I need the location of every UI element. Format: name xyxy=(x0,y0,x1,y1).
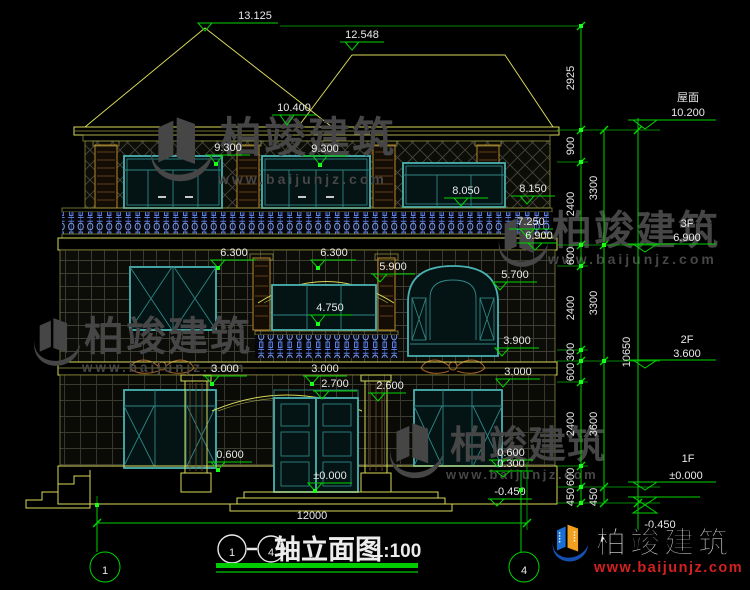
title-name: 轴立面图 xyxy=(274,534,382,565)
svg-text:±0.000: ±0.000 xyxy=(669,470,703,482)
level-mark: -0.450 xyxy=(488,486,532,506)
brand-logo: 柏竣建筑 www.baijunjz.com xyxy=(553,525,743,576)
pilaster xyxy=(250,254,273,330)
pilaster xyxy=(93,141,119,208)
level-mark: 12.548 xyxy=(340,29,384,50)
brand-logo-icon xyxy=(553,525,588,562)
balcony-rail-2f xyxy=(255,331,398,358)
watermark-url: www.baijunjz.com xyxy=(217,171,387,187)
dim: 600 xyxy=(565,468,577,486)
axis-left: 1 xyxy=(102,565,108,577)
dim: 2400 xyxy=(565,296,577,320)
dim: 3600 xyxy=(588,412,600,436)
title-scale: 1:100 xyxy=(373,541,422,562)
dim: 2925 xyxy=(565,66,577,90)
dim: 900 xyxy=(565,137,577,155)
width-dim: 12000 xyxy=(297,510,328,522)
svg-text:13.125: 13.125 xyxy=(238,10,272,22)
svg-text:2F: 2F xyxy=(681,334,694,346)
floor-marker: 2F 3.600 xyxy=(628,334,716,368)
svg-text:2.600: 2.600 xyxy=(376,380,404,392)
svg-text:5.900: 5.900 xyxy=(379,261,407,273)
floor-marker: 1F ±0.000 xyxy=(628,453,716,490)
level-mark: 13.125 xyxy=(198,10,278,31)
svg-text:2.700: 2.700 xyxy=(321,378,349,390)
svg-text:5.700: 5.700 xyxy=(501,269,529,281)
brand-logo-name: 柏竣建筑 xyxy=(596,526,732,560)
cad-viewport: 柏竣建筑 www.baijunjz.com 柏竣建筑 www.baijunjz.… xyxy=(0,0,750,590)
svg-text:6.300: 6.300 xyxy=(320,247,348,259)
floor-level-markers: 屋面 10.200 3F 6.900 2F 3.600 1F ±0.000 -0… xyxy=(628,91,716,531)
watermark-brand: 柏竣建筑 xyxy=(450,425,606,467)
dim: 300 xyxy=(565,343,577,361)
title-axis-from: 1 xyxy=(229,547,235,559)
svg-text:6.300: 6.300 xyxy=(220,247,248,259)
axis-right: 4 xyxy=(521,565,527,577)
dim: 450 xyxy=(565,488,577,506)
svg-text:3.000: 3.000 xyxy=(211,363,239,375)
dim: 3300 xyxy=(588,176,600,200)
svg-text:0.600: 0.600 xyxy=(216,449,244,461)
steps xyxy=(26,470,452,511)
svg-text:0.300: 0.300 xyxy=(497,458,525,470)
dim: 3300 xyxy=(588,291,600,315)
svg-text:7.250: 7.250 xyxy=(517,216,545,228)
floor-marker: 屋面 10.200 xyxy=(628,91,716,129)
svg-text:8.050: 8.050 xyxy=(452,185,480,197)
dim: 600 xyxy=(565,363,577,381)
svg-text:8.150: 8.150 xyxy=(519,183,547,195)
svg-text:12.548: 12.548 xyxy=(345,29,379,41)
brand-logo-url: www.baijunjz.com xyxy=(593,560,743,576)
svg-text:9.300: 9.300 xyxy=(311,143,339,155)
svg-text:3F: 3F xyxy=(681,218,694,230)
svg-text:10.400: 10.400 xyxy=(277,102,311,114)
watermark-brand: 柏竣建筑 xyxy=(220,114,396,161)
svg-text:1F: 1F xyxy=(682,453,695,465)
window-2f-arched xyxy=(408,266,498,356)
watermark: 柏竣建筑 www.baijunjz.com xyxy=(151,114,396,187)
svg-text:3.900: 3.900 xyxy=(503,335,531,347)
dim: 600 xyxy=(565,247,577,265)
svg-text:3.600: 3.600 xyxy=(673,348,701,360)
drawing-title: 1 4 轴立面图 1:100 xyxy=(216,534,421,572)
watermark-brand: 柏竣建筑 xyxy=(84,315,252,359)
dim-total: 10650 xyxy=(621,337,633,368)
svg-text:屋面: 屋面 xyxy=(677,91,699,104)
elevation-drawing: 柏竣建筑 www.baijunjz.com 柏竣建筑 www.baijunjz.… xyxy=(0,0,750,590)
svg-text:3.000: 3.000 xyxy=(311,363,339,375)
dim: 2400 xyxy=(565,412,577,436)
svg-text:6.900: 6.900 xyxy=(673,232,701,244)
entry-column-left xyxy=(181,375,211,492)
svg-text:±0.000: ±0.000 xyxy=(313,470,347,482)
svg-text:4.750: 4.750 xyxy=(316,302,344,314)
svg-text:10.200: 10.200 xyxy=(671,107,705,119)
balustrade-3f xyxy=(58,208,557,250)
svg-text:3.000: 3.000 xyxy=(504,366,532,378)
dim: 450 xyxy=(588,488,600,506)
svg-text:9.300: 9.300 xyxy=(214,142,242,154)
svg-text:6.900: 6.900 xyxy=(525,230,553,242)
dim: 2400 xyxy=(565,192,577,216)
